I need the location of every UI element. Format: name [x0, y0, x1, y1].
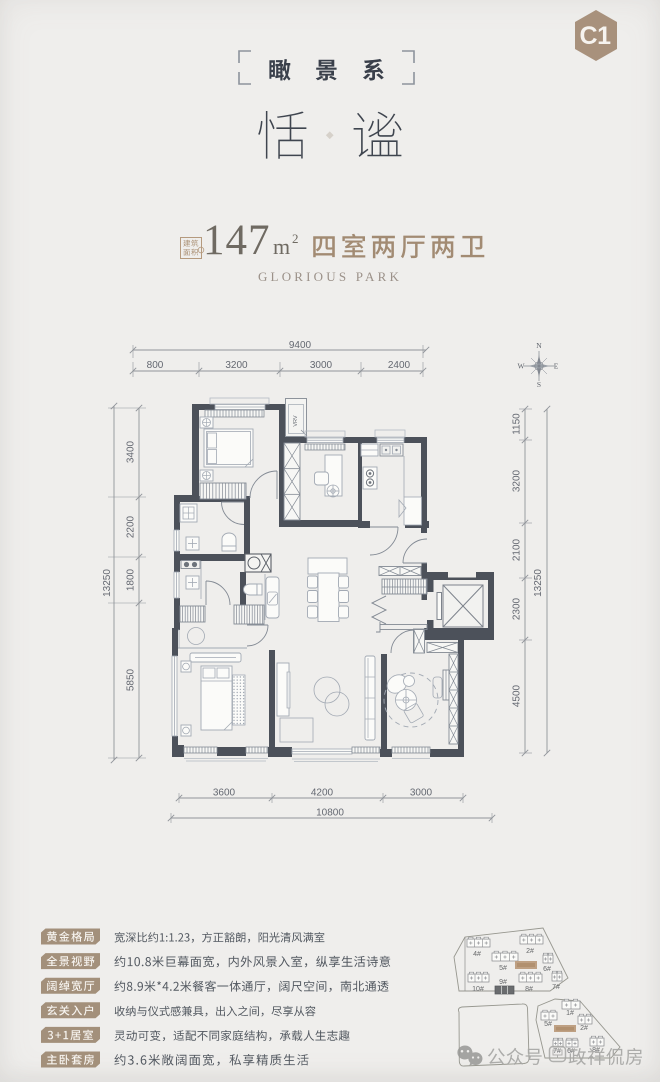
svg-text:m: m	[273, 234, 290, 259]
svg-text:8#: 8#	[525, 986, 533, 993]
svg-text:7#: 7#	[552, 984, 560, 991]
svg-text:9400: 9400	[289, 340, 312, 351]
svg-text:4#: 4#	[473, 951, 481, 958]
svg-text:2300: 2300	[512, 597, 523, 620]
svg-text:5#: 5#	[544, 1021, 552, 1028]
svg-text:1150: 1150	[512, 413, 523, 435]
svg-text:3400: 3400	[126, 440, 137, 463]
svg-text:S: S	[537, 380, 541, 389]
svg-text:4200: 4200	[311, 788, 334, 799]
svg-text:C1: C1	[580, 22, 612, 50]
svg-text:3000: 3000	[410, 788, 433, 799]
svg-text:6#: 6#	[543, 966, 551, 973]
svg-text:5#: 5#	[499, 965, 507, 972]
svg-text:3200: 3200	[225, 360, 248, 371]
svg-text:10#: 10#	[472, 986, 484, 993]
svg-text:5850: 5850	[126, 668, 137, 691]
svg-text:2400: 2400	[388, 360, 411, 371]
svg-text:2200: 2200	[126, 515, 137, 538]
svg-text:13250: 13250	[102, 569, 113, 597]
svg-text:3200: 3200	[512, 469, 523, 492]
svg-text:3000: 3000	[310, 360, 333, 371]
svg-text:1800: 1800	[126, 568, 137, 591]
svg-text:10800: 10800	[316, 808, 344, 819]
svg-text:2100: 2100	[512, 538, 523, 561]
svg-text:E: E	[554, 362, 559, 371]
svg-text:1#: 1#	[566, 1010, 574, 1017]
svg-text:2: 2	[292, 231, 299, 246]
svg-text:GLORIOUS PARK: GLORIOUS PARK	[258, 269, 402, 284]
svg-text:2#: 2#	[580, 1025, 588, 1032]
svg-text:3600: 3600	[213, 788, 236, 799]
svg-text:13250: 13250	[533, 569, 544, 597]
svg-text:2#: 2#	[526, 948, 534, 955]
svg-text:9#: 9#	[499, 979, 507, 986]
svg-text:4500: 4500	[512, 684, 523, 707]
svg-text:W: W	[517, 362, 525, 371]
svg-text:VRV: VRV	[293, 415, 299, 427]
svg-text:147: 147	[203, 217, 271, 264]
svg-text:7#: 7#	[553, 1048, 561, 1055]
svg-text:800: 800	[147, 360, 164, 371]
svg-text:N: N	[536, 341, 542, 350]
